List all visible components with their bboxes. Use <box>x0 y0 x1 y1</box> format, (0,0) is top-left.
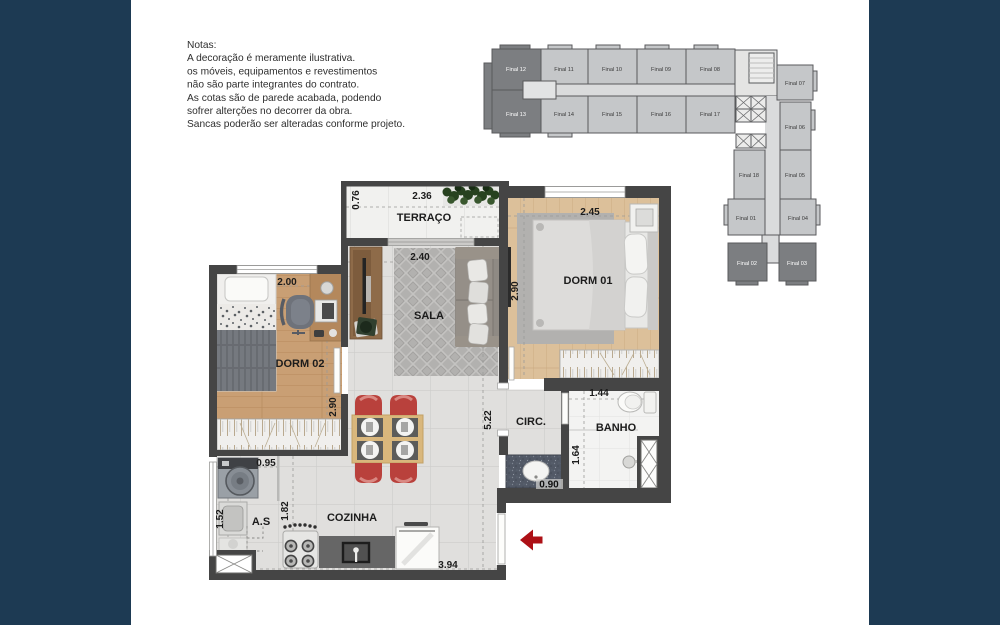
svg-text:Final 05: Final 05 <box>785 173 805 179</box>
svg-text:Final 01: Final 01 <box>736 216 756 222</box>
svg-text:Final 10: Final 10 <box>602 67 622 73</box>
svg-text:TERRAÇO: TERRAÇO <box>397 212 452 224</box>
svg-text:A decoração é meramente ilustr: A decoração é meramente ilustrativa. <box>187 53 355 64</box>
svg-text:5.22: 5.22 <box>483 410 494 430</box>
svg-text:2.36: 2.36 <box>412 191 432 202</box>
svg-text:2.90: 2.90 <box>328 397 339 417</box>
svg-text:Final 13: Final 13 <box>506 112 526 118</box>
svg-text:0.95: 0.95 <box>256 458 276 469</box>
svg-text:2.45: 2.45 <box>580 207 600 218</box>
svg-text:Final 03: Final 03 <box>787 261 807 267</box>
svg-text:3.94: 3.94 <box>438 560 458 571</box>
svg-text:COZINHA: COZINHA <box>327 512 377 524</box>
svg-text:0.76: 0.76 <box>351 190 362 210</box>
svg-text:Final 07: Final 07 <box>785 81 805 87</box>
svg-text:A.S: A.S <box>252 516 270 528</box>
svg-text:os móveis, equipamentos e reve: os móveis, equipamentos e revestimentos <box>187 66 377 77</box>
svg-text:Final 06: Final 06 <box>785 125 805 131</box>
svg-text:1.64: 1.64 <box>571 445 582 465</box>
svg-text:não são parte integrantes do c: não são parte integrantes do contrato. <box>187 80 359 91</box>
svg-text:1.52: 1.52 <box>215 509 226 529</box>
svg-text:Final 02: Final 02 <box>737 261 757 267</box>
svg-text:SALA: SALA <box>414 310 444 322</box>
svg-text:Final 09: Final 09 <box>651 67 671 73</box>
svg-text:Notas:: Notas: <box>187 40 216 51</box>
svg-text:Final 15: Final 15 <box>602 112 622 118</box>
svg-text:Final 16: Final 16 <box>651 112 671 118</box>
svg-text:2.90: 2.90 <box>510 281 521 301</box>
svg-text:DORM 01: DORM 01 <box>564 275 613 287</box>
svg-text:Final 04: Final 04 <box>788 216 808 222</box>
svg-text:Final 17: Final 17 <box>700 112 720 118</box>
svg-text:DORM 02: DORM 02 <box>276 358 325 370</box>
svg-text:1.82: 1.82 <box>280 501 291 521</box>
svg-text:Final 11: Final 11 <box>554 67 574 73</box>
svg-text:BANHO: BANHO <box>596 422 637 434</box>
svg-text:Final 18: Final 18 <box>739 173 759 179</box>
svg-text:2.00: 2.00 <box>277 277 297 288</box>
svg-text:Final 14: Final 14 <box>554 112 574 118</box>
svg-text:0.90: 0.90 <box>539 480 559 491</box>
svg-text:1.44: 1.44 <box>589 388 609 399</box>
svg-text:Sancas poderão ser alteradas c: Sancas poderão ser alteradas conforme pr… <box>187 119 405 130</box>
svg-text:As cotas são de parede acabada: As cotas são de parede acabada, podendo <box>187 93 382 104</box>
svg-text:CIRC.: CIRC. <box>516 416 546 428</box>
svg-text:Final 12: Final 12 <box>506 67 526 73</box>
svg-text:sofrer alterções no decorrer d: sofrer alterções no decorrer da obra. <box>187 106 352 117</box>
svg-text:2.40: 2.40 <box>410 252 430 263</box>
svg-text:Final 08: Final 08 <box>700 67 720 73</box>
